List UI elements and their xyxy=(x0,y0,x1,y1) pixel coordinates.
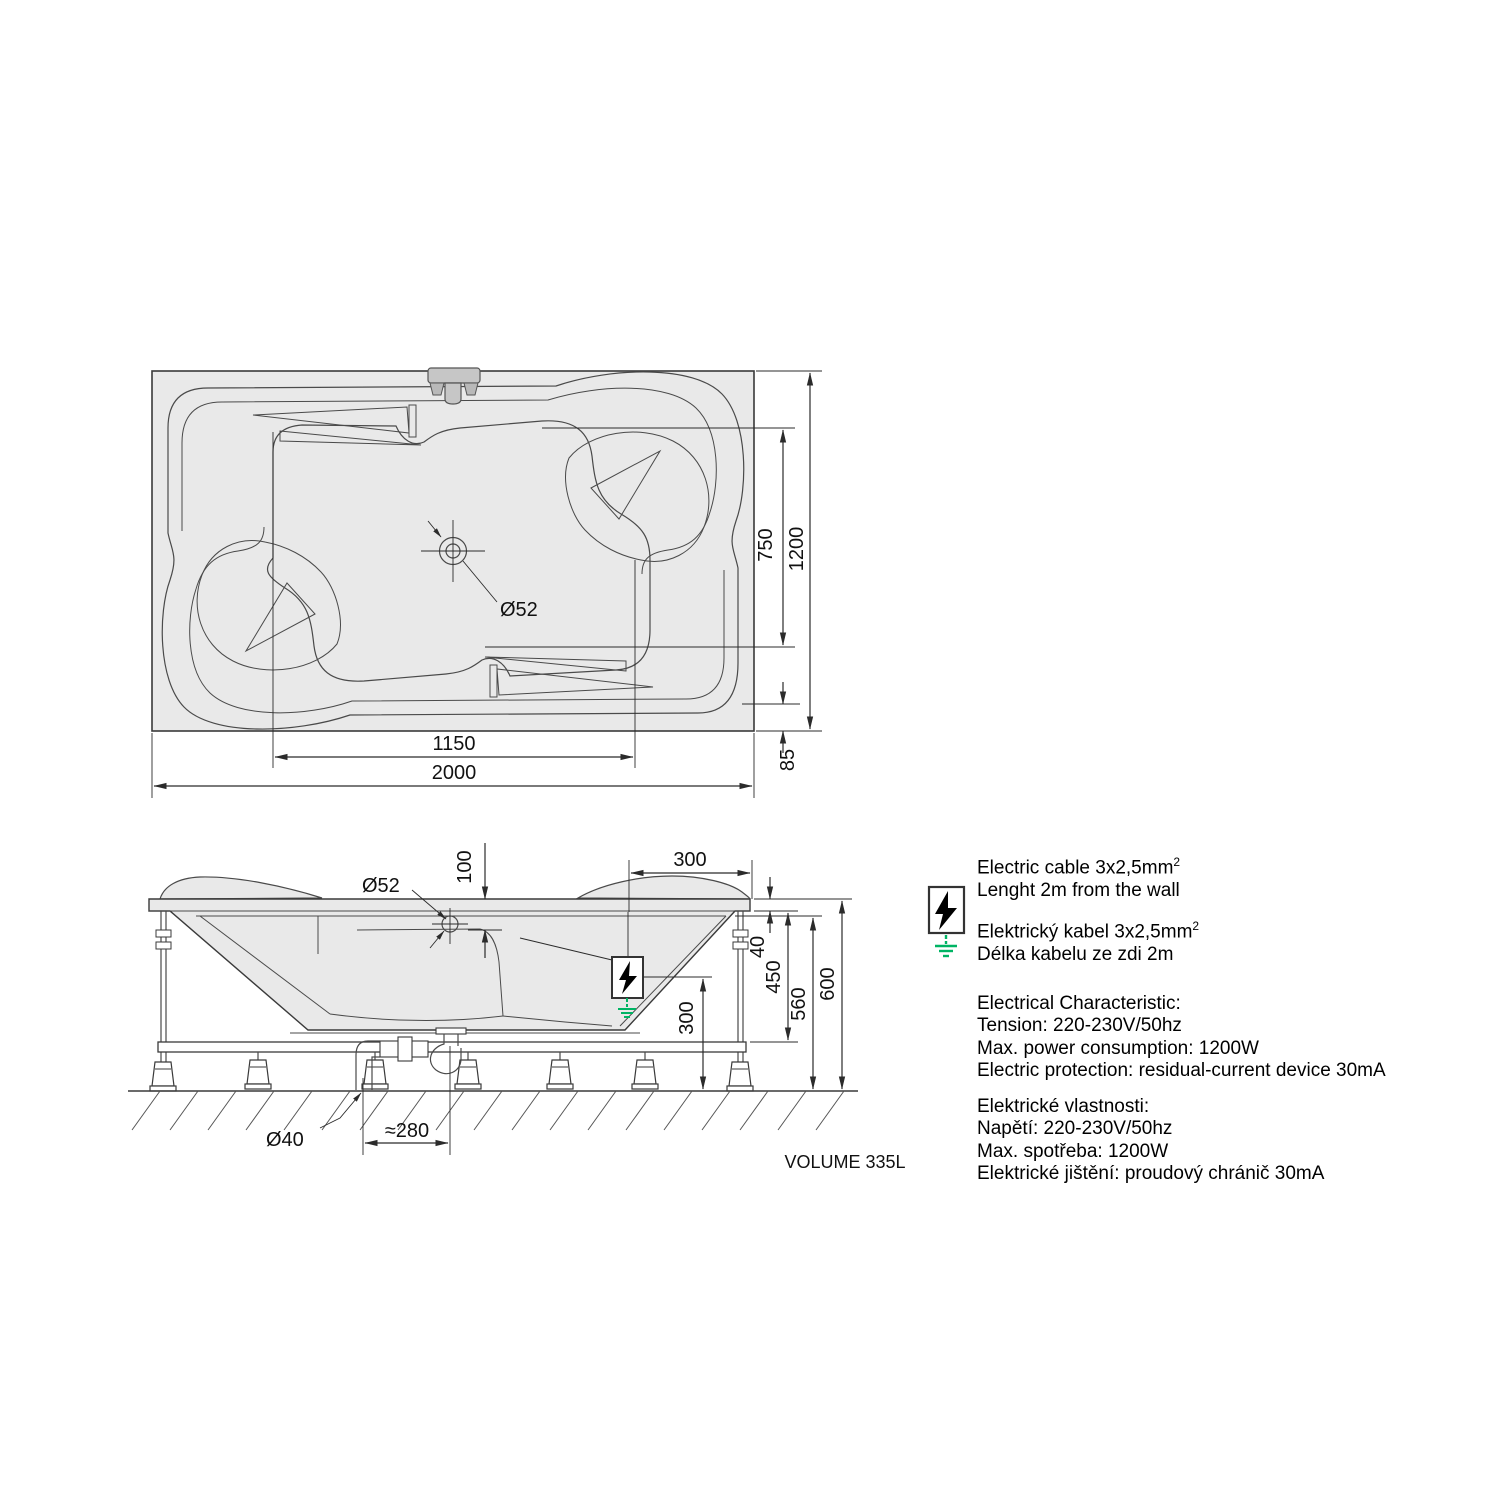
waste-siphon xyxy=(356,1028,466,1090)
drain-diameter-label: Ø52 xyxy=(500,599,538,621)
svg-text:450: 450 xyxy=(763,960,785,993)
electrical-notes: Electric cable 3x2,5mm2 Lenght 2m from t… xyxy=(977,851,1447,1186)
svg-text:≈280: ≈280 xyxy=(385,1120,429,1142)
svg-text:40: 40 xyxy=(747,936,769,958)
svg-text:1200: 1200 xyxy=(786,527,808,572)
tub-side-body xyxy=(149,899,750,1030)
volume-label: VOLUME 335L xyxy=(784,1152,905,1172)
svg-text:1150: 1150 xyxy=(432,733,475,755)
note-en-power: Max. power consumption: 1200W xyxy=(977,1038,1447,1061)
frame-feet xyxy=(245,1052,658,1089)
headrest-left-profile xyxy=(160,877,322,899)
top-view-drawing: Ø52 1200 750 85 1150 xyxy=(120,350,850,810)
note-cable-cz-2: Délka kabelu ze zdi 2m xyxy=(977,944,1447,967)
drain-diameter-side-label: Ø52 xyxy=(362,875,400,897)
dim-rim-thickness: 40 xyxy=(747,877,852,958)
note-cz-protection: Elektrické jištění: proudový chránič 30m… xyxy=(977,1163,1447,1186)
svg-text:100: 100 xyxy=(454,850,476,883)
svg-text:750: 750 xyxy=(755,528,777,561)
note-en-tension: Tension: 220-230V/50hz xyxy=(977,1015,1447,1038)
svg-text:Ø40: Ø40 xyxy=(266,1129,304,1151)
support-leg-left xyxy=(150,911,176,1091)
note-en-protection: Electric protection: residual-current de… xyxy=(977,1060,1447,1083)
note-cable-en-2: Lenght 2m from the wall xyxy=(977,880,1447,903)
technical-drawing-page: Ø52 1200 750 85 1150 xyxy=(0,0,1500,1500)
note-cable-cz-1: Elektrický kabel 3x2,5mm2 xyxy=(977,915,1447,944)
dim-total-height: 600 xyxy=(817,901,842,1089)
note-en-title: Electrical Characteristic: xyxy=(977,993,1447,1016)
headrest-right-profile xyxy=(578,876,750,899)
note-cz-power: Max. spotřeba: 1200W xyxy=(977,1141,1447,1164)
note-cable-en-1: Electric cable 3x2,5mm2 xyxy=(977,851,1447,880)
electric-symbol-legend xyxy=(926,882,970,962)
support-frame-rail xyxy=(158,1042,746,1052)
svg-text:2000: 2000 xyxy=(432,762,477,784)
svg-text:300: 300 xyxy=(673,849,706,871)
dim-rim-to-frame: 450 xyxy=(750,913,798,1042)
svg-text:85: 85 xyxy=(777,749,799,771)
note-cz-title: Elektrické vlastnosti: xyxy=(977,1096,1447,1119)
dim-waste-pipe: Ø40 xyxy=(266,1093,361,1151)
note-cz-tension: Napětí: 220-230V/50hz xyxy=(977,1118,1447,1141)
earth-ground-icon xyxy=(935,935,957,956)
floor-hatching xyxy=(132,1091,844,1130)
svg-text:300: 300 xyxy=(676,1001,698,1034)
side-view-drawing: Ø52 100 300 40 450 xyxy=(120,830,920,1200)
svg-text:600: 600 xyxy=(817,967,839,1000)
svg-text:560: 560 xyxy=(788,987,810,1020)
